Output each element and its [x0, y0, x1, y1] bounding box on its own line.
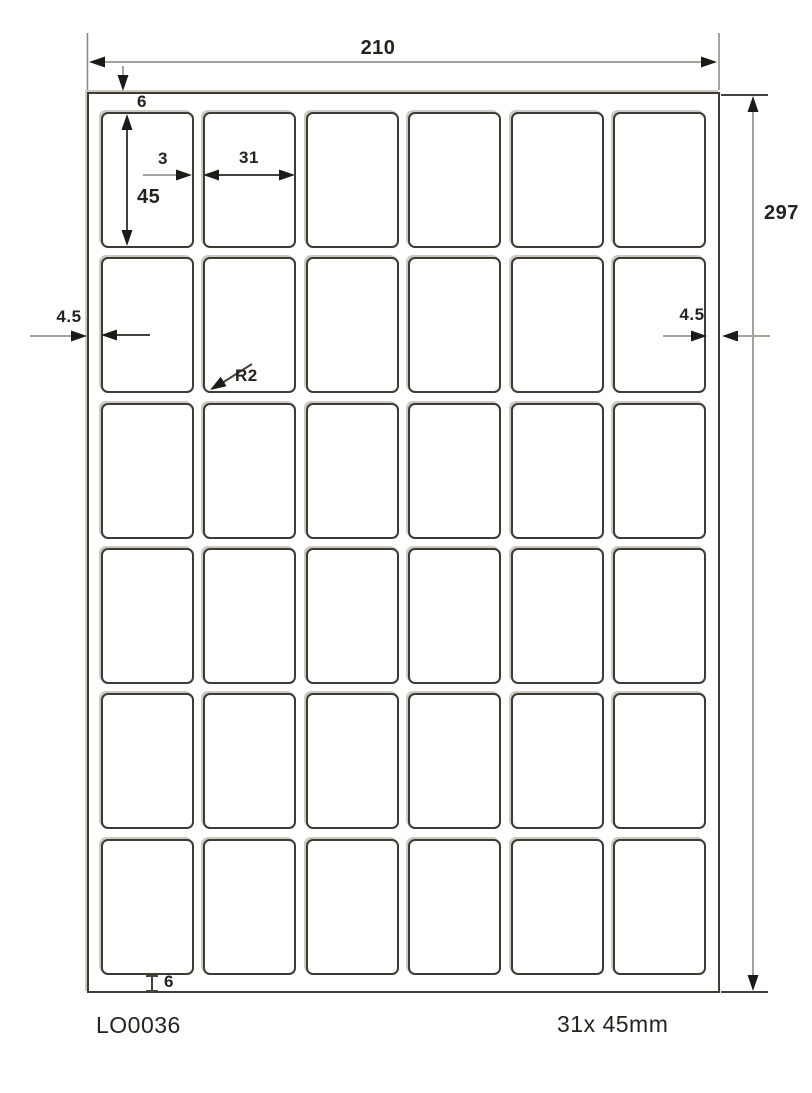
- label-cell: [511, 257, 604, 393]
- bottom-margin-value: 6: [164, 973, 174, 990]
- label-cell: [408, 257, 501, 393]
- label-cell: [408, 693, 501, 829]
- label-width-value: 31: [239, 149, 259, 166]
- label-cell: [101, 693, 194, 829]
- label-cell: [408, 839, 501, 975]
- top-margin-value: 6: [137, 93, 147, 110]
- label-cell: [408, 403, 501, 539]
- label-cell: [306, 112, 399, 248]
- label-cell: [613, 403, 706, 539]
- sheet-width-value: 210: [361, 38, 396, 58]
- label-cell: [613, 112, 706, 248]
- label-cell: [101, 257, 194, 393]
- label-cell: [306, 257, 399, 393]
- label-cell: [511, 112, 604, 248]
- label-cell: [203, 693, 296, 829]
- label-cell: [306, 693, 399, 829]
- left-margin-value: 4.5: [56, 308, 81, 325]
- label-cell: [203, 403, 296, 539]
- label-size-text: 31x 45mm: [557, 1013, 668, 1036]
- label-cell: [408, 548, 501, 684]
- label-cell: [613, 839, 706, 975]
- height-dimension-line: [748, 96, 759, 991]
- label-cell: [306, 839, 399, 975]
- label-sheet-diagram: 210 297 6 45 3 31 4.5 4.5 R2 6 LO0036 31…: [0, 0, 812, 1093]
- label-height-value: 45: [137, 187, 160, 207]
- label-cell: [203, 548, 296, 684]
- gap-value: 3: [158, 150, 168, 167]
- label-cell: [101, 839, 194, 975]
- sheet-height-value: 297: [764, 203, 799, 223]
- product-code: LO0036: [96, 1014, 181, 1037]
- sheet-outline: [87, 92, 720, 993]
- label-cell: [613, 693, 706, 829]
- top-margin-arrow: [118, 66, 129, 91]
- corner-radius-value: R2: [235, 367, 258, 384]
- right-margin-value: 4.5: [679, 306, 704, 323]
- label-cell: [511, 403, 604, 539]
- label-cell: [511, 693, 604, 829]
- label-cell: [613, 257, 706, 393]
- label-cell: [511, 548, 604, 684]
- label-cell: [408, 112, 501, 248]
- label-cell: [203, 112, 296, 248]
- label-cell: [511, 839, 604, 975]
- label-cell: [101, 403, 194, 539]
- label-cell: [101, 548, 194, 684]
- label-cell: [306, 403, 399, 539]
- label-cell: [203, 839, 296, 975]
- label-cell: [613, 548, 706, 684]
- width-dimension-line: [89, 57, 717, 68]
- label-cell: [306, 548, 399, 684]
- label-cell: [101, 112, 194, 248]
